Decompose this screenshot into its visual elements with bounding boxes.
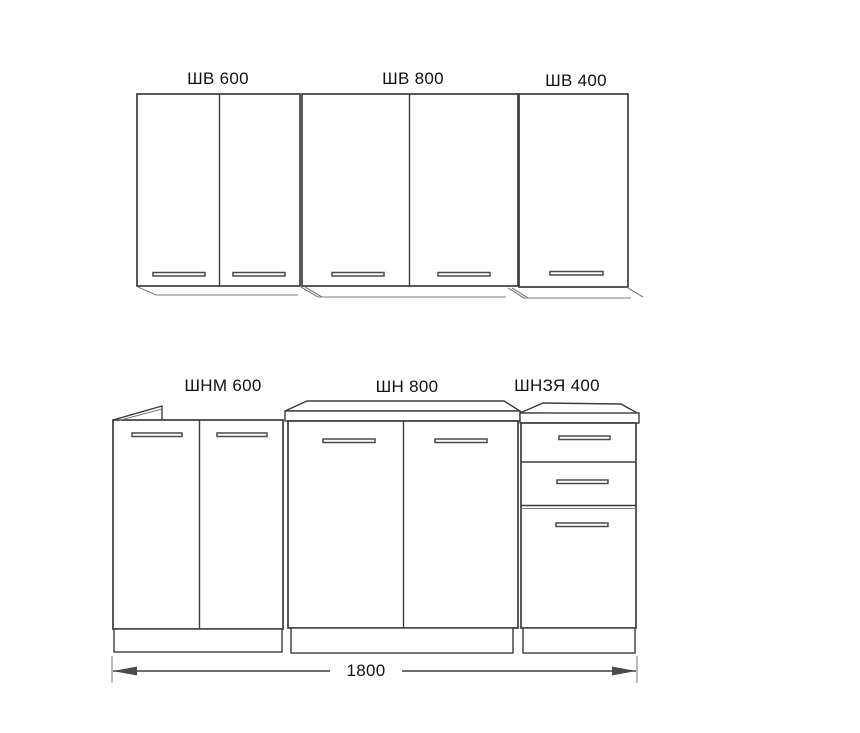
wall-cabinet-shv-600 [137,94,300,286]
door-handle [438,273,490,277]
label-wall-cabinet-shv-400: ШВ 400 [545,72,607,90]
door-handle [217,433,267,437]
cabinet-body [137,94,300,286]
base-cabinet-shnzya-400 [520,403,639,653]
door-handle [233,273,285,277]
wall-cabinet-shv-800 [302,94,518,286]
base-cabinet-shn-800 [285,401,520,653]
sink-back-edge [113,406,162,420]
label-wall-cabinet-shv-800: ШВ 800 [382,70,444,88]
arrow-left-icon [113,667,137,676]
countertop-front [520,413,639,423]
cabinet-line-drawing [0,0,860,733]
plinth [114,629,282,652]
bottom-panel-corner [512,288,528,298]
door-handle [132,433,182,437]
countertop-top [285,401,520,411]
door-handle [323,439,375,443]
kitchen-elevation-diagram: ШВ 600 ШВ 800 ШВ 400 ШНМ 600 ШН 800 ШНЗЯ… [0,0,860,733]
bottom-panel-corner [305,287,322,297]
cabinet-body [113,420,283,629]
door-handle [435,439,487,443]
plinth [523,628,635,653]
door-handle [332,273,384,277]
label-base-cabinet-shn-800: ШН 800 [376,378,439,396]
door-handle [550,272,603,276]
label-base-cabinet-shnm-600: ШНМ 600 [184,377,261,395]
arrow-right-icon [612,667,636,676]
plinth [291,628,513,653]
bottom-panel-corner [628,288,643,297]
drawer-handle [557,480,608,484]
door-handle [153,273,205,277]
door-handle [556,523,608,527]
bottom-panel-edge [138,287,298,295]
base-cabinet-shnm-600 [113,406,283,652]
label-base-cabinet-shnzya-400: ШНЗЯ 400 [514,377,600,395]
bottom-panel-corner [508,288,524,298]
wall-cabinet-bottom-panels [138,287,643,298]
cabinet-body [519,94,628,287]
dimension-value: 1800 [340,662,391,680]
countertop-front [285,411,520,421]
label-wall-cabinet-shv-600: ШВ 600 [187,70,249,88]
wall-cabinet-shv-400 [519,94,628,287]
bottom-panel-corner [301,287,318,297]
drawer-handle [559,436,610,440]
